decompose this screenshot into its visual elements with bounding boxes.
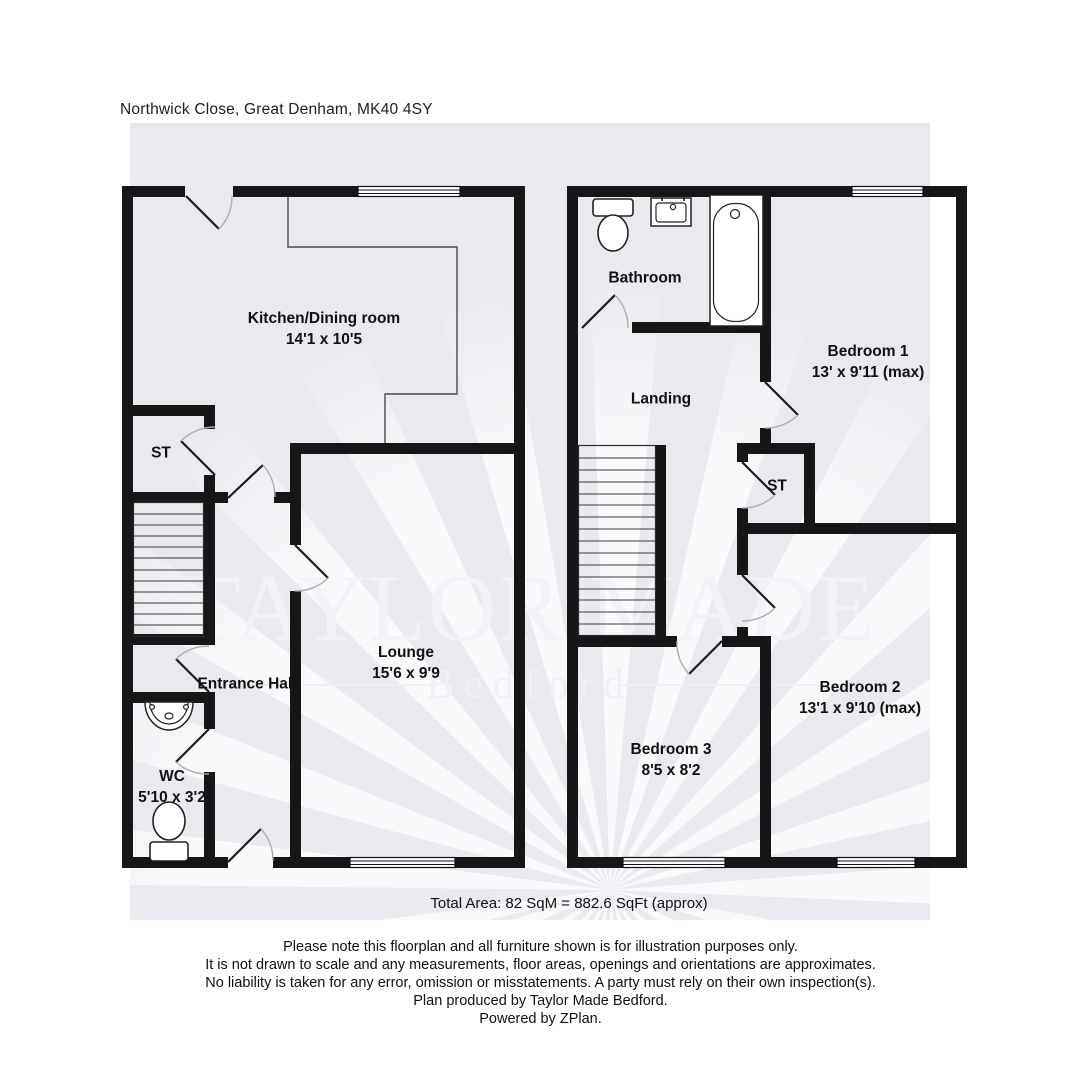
door <box>765 382 798 428</box>
window <box>623 858 725 868</box>
room-label-entrance-hall: Entrance Hall <box>197 674 297 695</box>
door <box>181 427 215 475</box>
room-label-bedroom2: Bedroom 2 13'1 x 9'10 (max) <box>799 677 921 719</box>
door <box>742 575 775 621</box>
room-dims: 5'10 x 3'2 <box>138 787 206 808</box>
room-name: ST <box>767 476 787 497</box>
room-name: Bedroom 3 <box>631 739 712 760</box>
room-label-bedroom3: Bedroom 3 8'5 x 8'2 <box>631 739 712 781</box>
room-name: Lounge <box>372 642 440 663</box>
room-name: Kitchen/Dining room <box>248 308 400 329</box>
room-name: Bedroom 1 <box>812 341 925 362</box>
door <box>295 545 328 591</box>
toilet-fixture <box>593 199 633 251</box>
room-label-storage-first: ST <box>767 476 787 497</box>
door <box>186 196 232 229</box>
bathtub-fixture <box>710 195 763 326</box>
disclaimer-text: Please note this floorplan and all furni… <box>0 938 1081 1028</box>
disclaimer-line: No liability is taken for any error, omi… <box>0 974 1081 992</box>
room-label-kitchen: Kitchen/Dining room 14'1 x 10'5 <box>248 308 400 350</box>
room-name: ST <box>151 443 171 464</box>
disclaimer-line: Plan produced by Taylor Made Bedford. <box>0 992 1081 1010</box>
room-label-bathroom: Bathroom <box>608 268 681 289</box>
ground-floor-windows <box>350 187 460 868</box>
room-name: Bathroom <box>608 268 681 289</box>
floorplan-drawing <box>0 0 1081 1080</box>
window <box>852 187 923 197</box>
room-dims: 8'5 x 8'2 <box>631 760 712 781</box>
total-area-text: Total Area: 82 SqM = 882.6 SqFt (approx) <box>430 895 707 912</box>
room-label-lounge: Lounge 15'6 x 9'9 <box>372 642 440 684</box>
sink-fixture <box>651 195 691 226</box>
sink-fixture <box>145 702 193 730</box>
bathroom-fixtures <box>593 195 763 326</box>
room-dims: 15'6 x 9'9 <box>372 663 440 684</box>
room-label-bedroom1: Bedroom 1 13' x 9'11 (max) <box>812 341 925 383</box>
disclaimer-line: It is not drawn to scale and any measure… <box>0 956 1081 974</box>
room-dims: 14'1 x 10'5 <box>248 329 400 350</box>
room-label-wc: WC 5'10 x 3'2 <box>138 766 206 808</box>
door <box>677 641 722 674</box>
door <box>228 465 275 498</box>
staircase-first <box>579 446 656 636</box>
room-name: Entrance Hall <box>197 674 297 695</box>
door <box>582 295 628 328</box>
room-dims: 13'1 x 9'10 (max) <box>799 698 921 719</box>
window <box>350 858 455 868</box>
room-label-storage-ground: ST <box>151 443 171 464</box>
ground-floor-doors <box>176 196 328 862</box>
disclaimer-line: Please note this floorplan and all furni… <box>0 938 1081 956</box>
window <box>837 858 915 868</box>
room-name: Bedroom 2 <box>799 677 921 698</box>
room-dims: 13' x 9'11 (max) <box>812 362 925 383</box>
window <box>358 187 460 197</box>
toilet-fixture <box>150 802 188 861</box>
door <box>228 829 273 862</box>
floorplan-canvas: Northwick Close, Great Denham, MK40 4SY … <box>0 0 1081 1080</box>
room-label-landing: Landing <box>631 389 691 410</box>
room-name: WC <box>138 766 206 787</box>
room-name: Landing <box>631 389 691 410</box>
disclaimer-line: Powered by ZPlan. <box>0 1010 1081 1028</box>
staircase-ground <box>134 503 204 637</box>
